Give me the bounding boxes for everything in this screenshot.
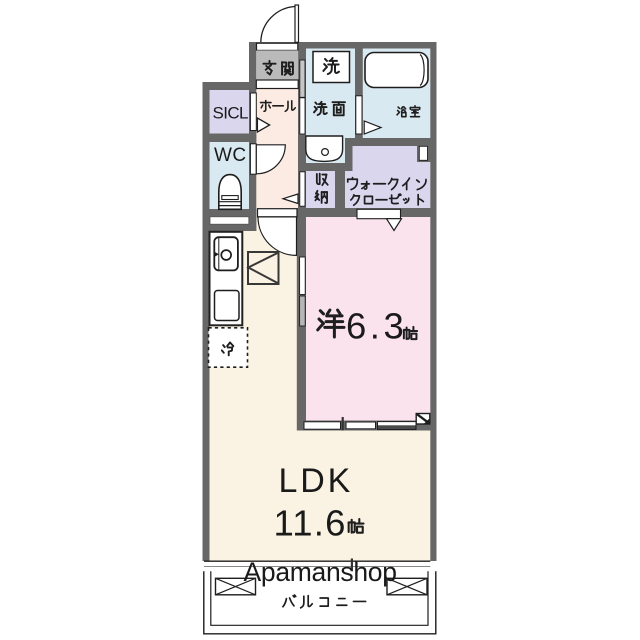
- svg-text:LDK: LDK: [279, 462, 354, 500]
- svg-text:SICL: SICL: [213, 104, 249, 123]
- svg-text:11.6: 11.6: [274, 503, 347, 544]
- svg-text:WC: WC: [214, 145, 247, 166]
- svg-text:Apamanshop: Apamanshop: [244, 557, 397, 587]
- svg-text:6.3: 6.3: [346, 306, 407, 347]
